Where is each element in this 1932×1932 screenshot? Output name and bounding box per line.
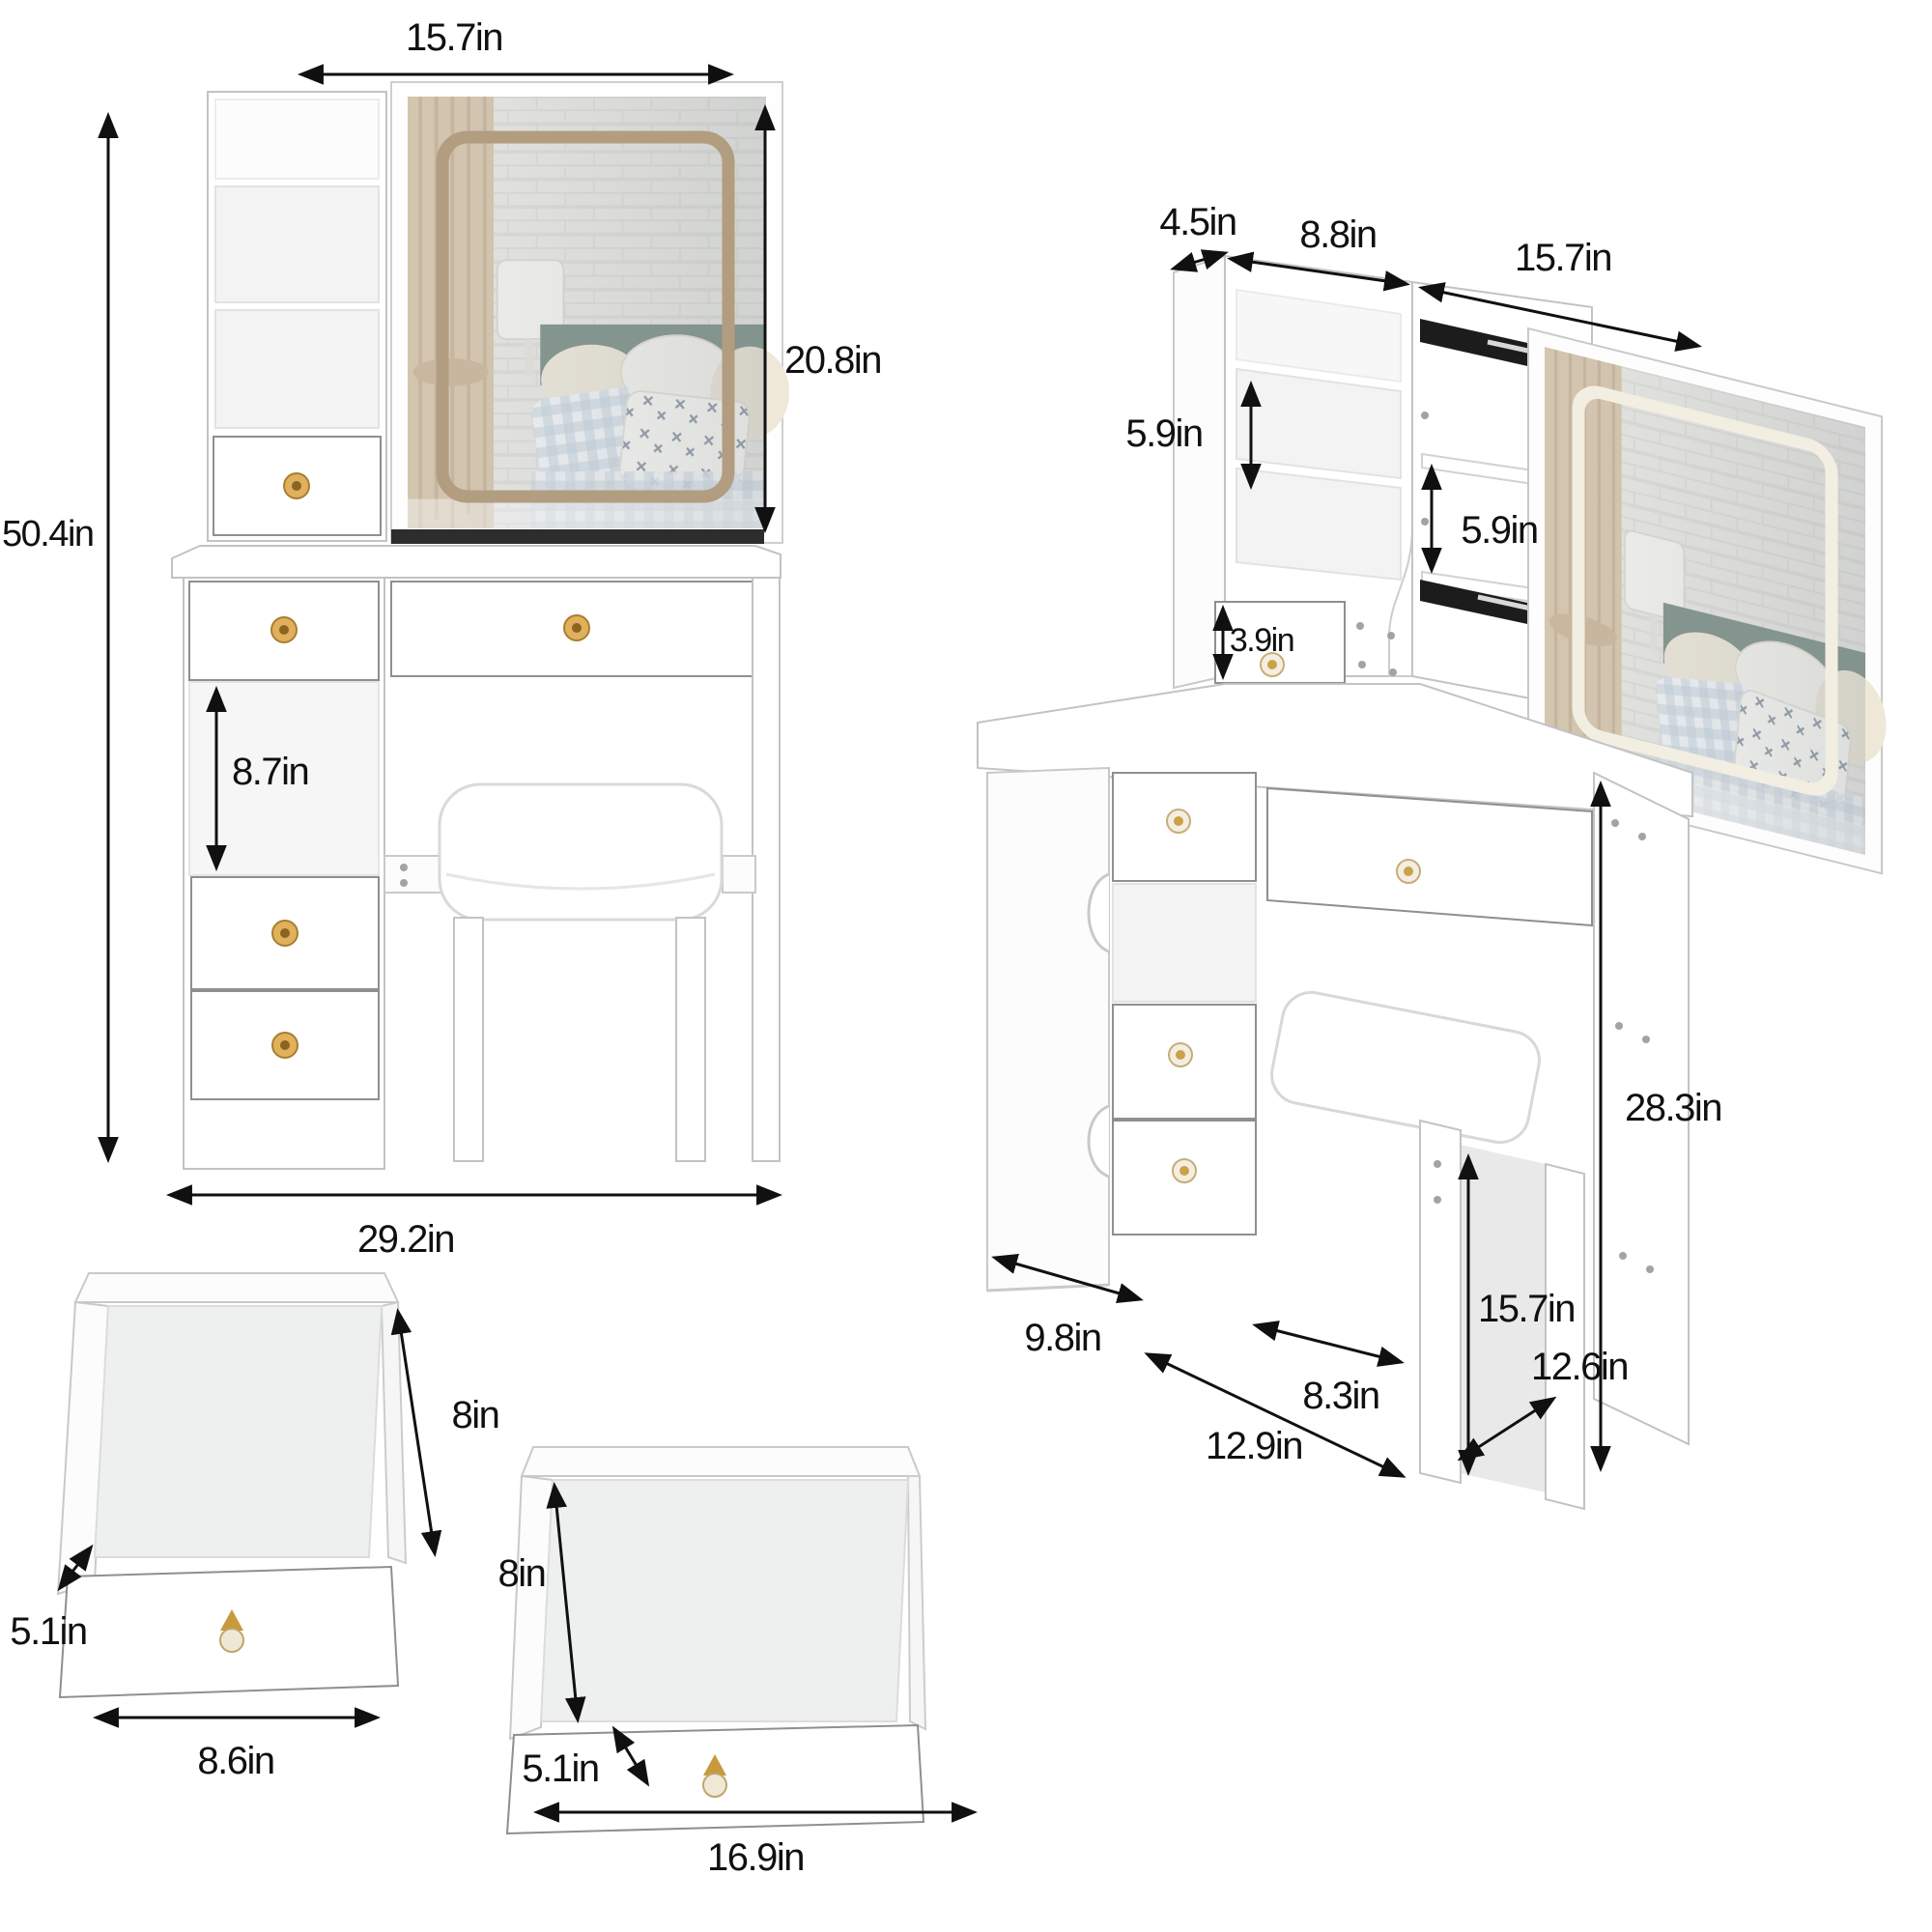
stool-leg [1546,1164,1584,1509]
figure-large-drawer: 8in 5.1in 16.9in [498,1447,974,1879]
dim-label-stool-height: 15.7in [1478,1288,1575,1330]
dim-label-front-shelf-gap: 8.7in [232,751,308,793]
crystal-knob-icon [1167,810,1190,833]
dim-label-side-panel-depth: 12.6in [1531,1346,1628,1388]
dim-label-front-mirror-width: 15.7in [406,16,502,59]
gold-knob-icon [272,921,298,946]
dim-arrow-knee-space-width [1256,1325,1401,1362]
dim-label-table-height: 28.3in [1625,1087,1721,1129]
dim-label-small-drawer-height: 3.9in [1230,622,1293,659]
stool-cushion [440,784,722,920]
front-shelf-tower [208,92,386,541]
gold-knob-icon [271,617,297,642]
gold-knob-icon [284,473,309,498]
angled-left-cabinet [987,768,1256,1291]
dim-label-small-drawer-height: 5.1in [10,1610,86,1653]
dim-label-hutch-width: 8.8in [1299,213,1376,256]
dim-label-small-drawer-width: 8.6in [197,1740,273,1782]
front-desktop [172,546,781,578]
cabinet-open-shelf [1113,884,1256,1002]
figure-small-drawer: 8in 5.1in 8.6in [10,1273,498,1782]
dim-label-front-total-height: 50.4in [2,514,94,554]
drawer-interior [95,1306,382,1557]
stool-cushion [1266,987,1544,1147]
angled-stool [1266,987,1584,1509]
dim-label-angled-mirror-width: 15.7in [1515,237,1611,279]
gold-knob-icon [272,1033,298,1058]
dim-label-front-mirror-height: 20.8in [784,339,881,382]
dim-label-large-drawer-width: 16.9in [707,1836,804,1879]
crystal-knob-icon [1397,860,1420,883]
dim-label-hutch-depth: 4.5in [1159,201,1236,243]
dim-label-large-drawer-depth: 8in [498,1552,546,1595]
front-stool [384,784,755,1161]
angled-wide-drawer [1267,788,1592,925]
dim-label-table-width: 12.9in [1206,1425,1302,1467]
dim-label-knee-space-width: 8.3in [1302,1375,1378,1417]
product-dimension-diagram: 15.7in 20.8in 50.4in 8.7in 29.2in [0,0,1932,1932]
stool-leg [1420,1121,1461,1483]
drawer-interior [541,1480,908,1721]
front-mirror [391,82,789,544]
stool-leg [676,918,705,1161]
front-desk-leg [753,578,780,1161]
diagram-canvas: 15.7in 20.8in 50.4in 8.7in 29.2in [0,0,1932,1932]
crystal-knob-icon [1173,1159,1196,1182]
dim-label-small-drawer-depth: 8in [452,1394,499,1436]
dim-label-middle-shelf-height: 5.9in [1461,509,1537,552]
stool-leg [454,918,483,1161]
dim-label-large-drawer-height: 5.1in [522,1747,598,1790]
mirror-base-strip [391,529,764,544]
figure-front-view: 15.7in 20.8in 50.4in 8.7in 29.2in [2,16,881,1261]
figure-angled-view: 4.5in 8.8in 15.7in 5.9in 5.9in 3.9in 28.… [978,201,1887,1509]
dim-label-cabinet-depth: 9.8in [1024,1317,1100,1359]
crystal-knob-icon [1169,1043,1192,1066]
dim-label-left-shelf-height: 5.9in [1125,412,1202,455]
dim-label-front-base-width: 29.2in [357,1218,454,1261]
gold-knob-icon [564,615,589,640]
